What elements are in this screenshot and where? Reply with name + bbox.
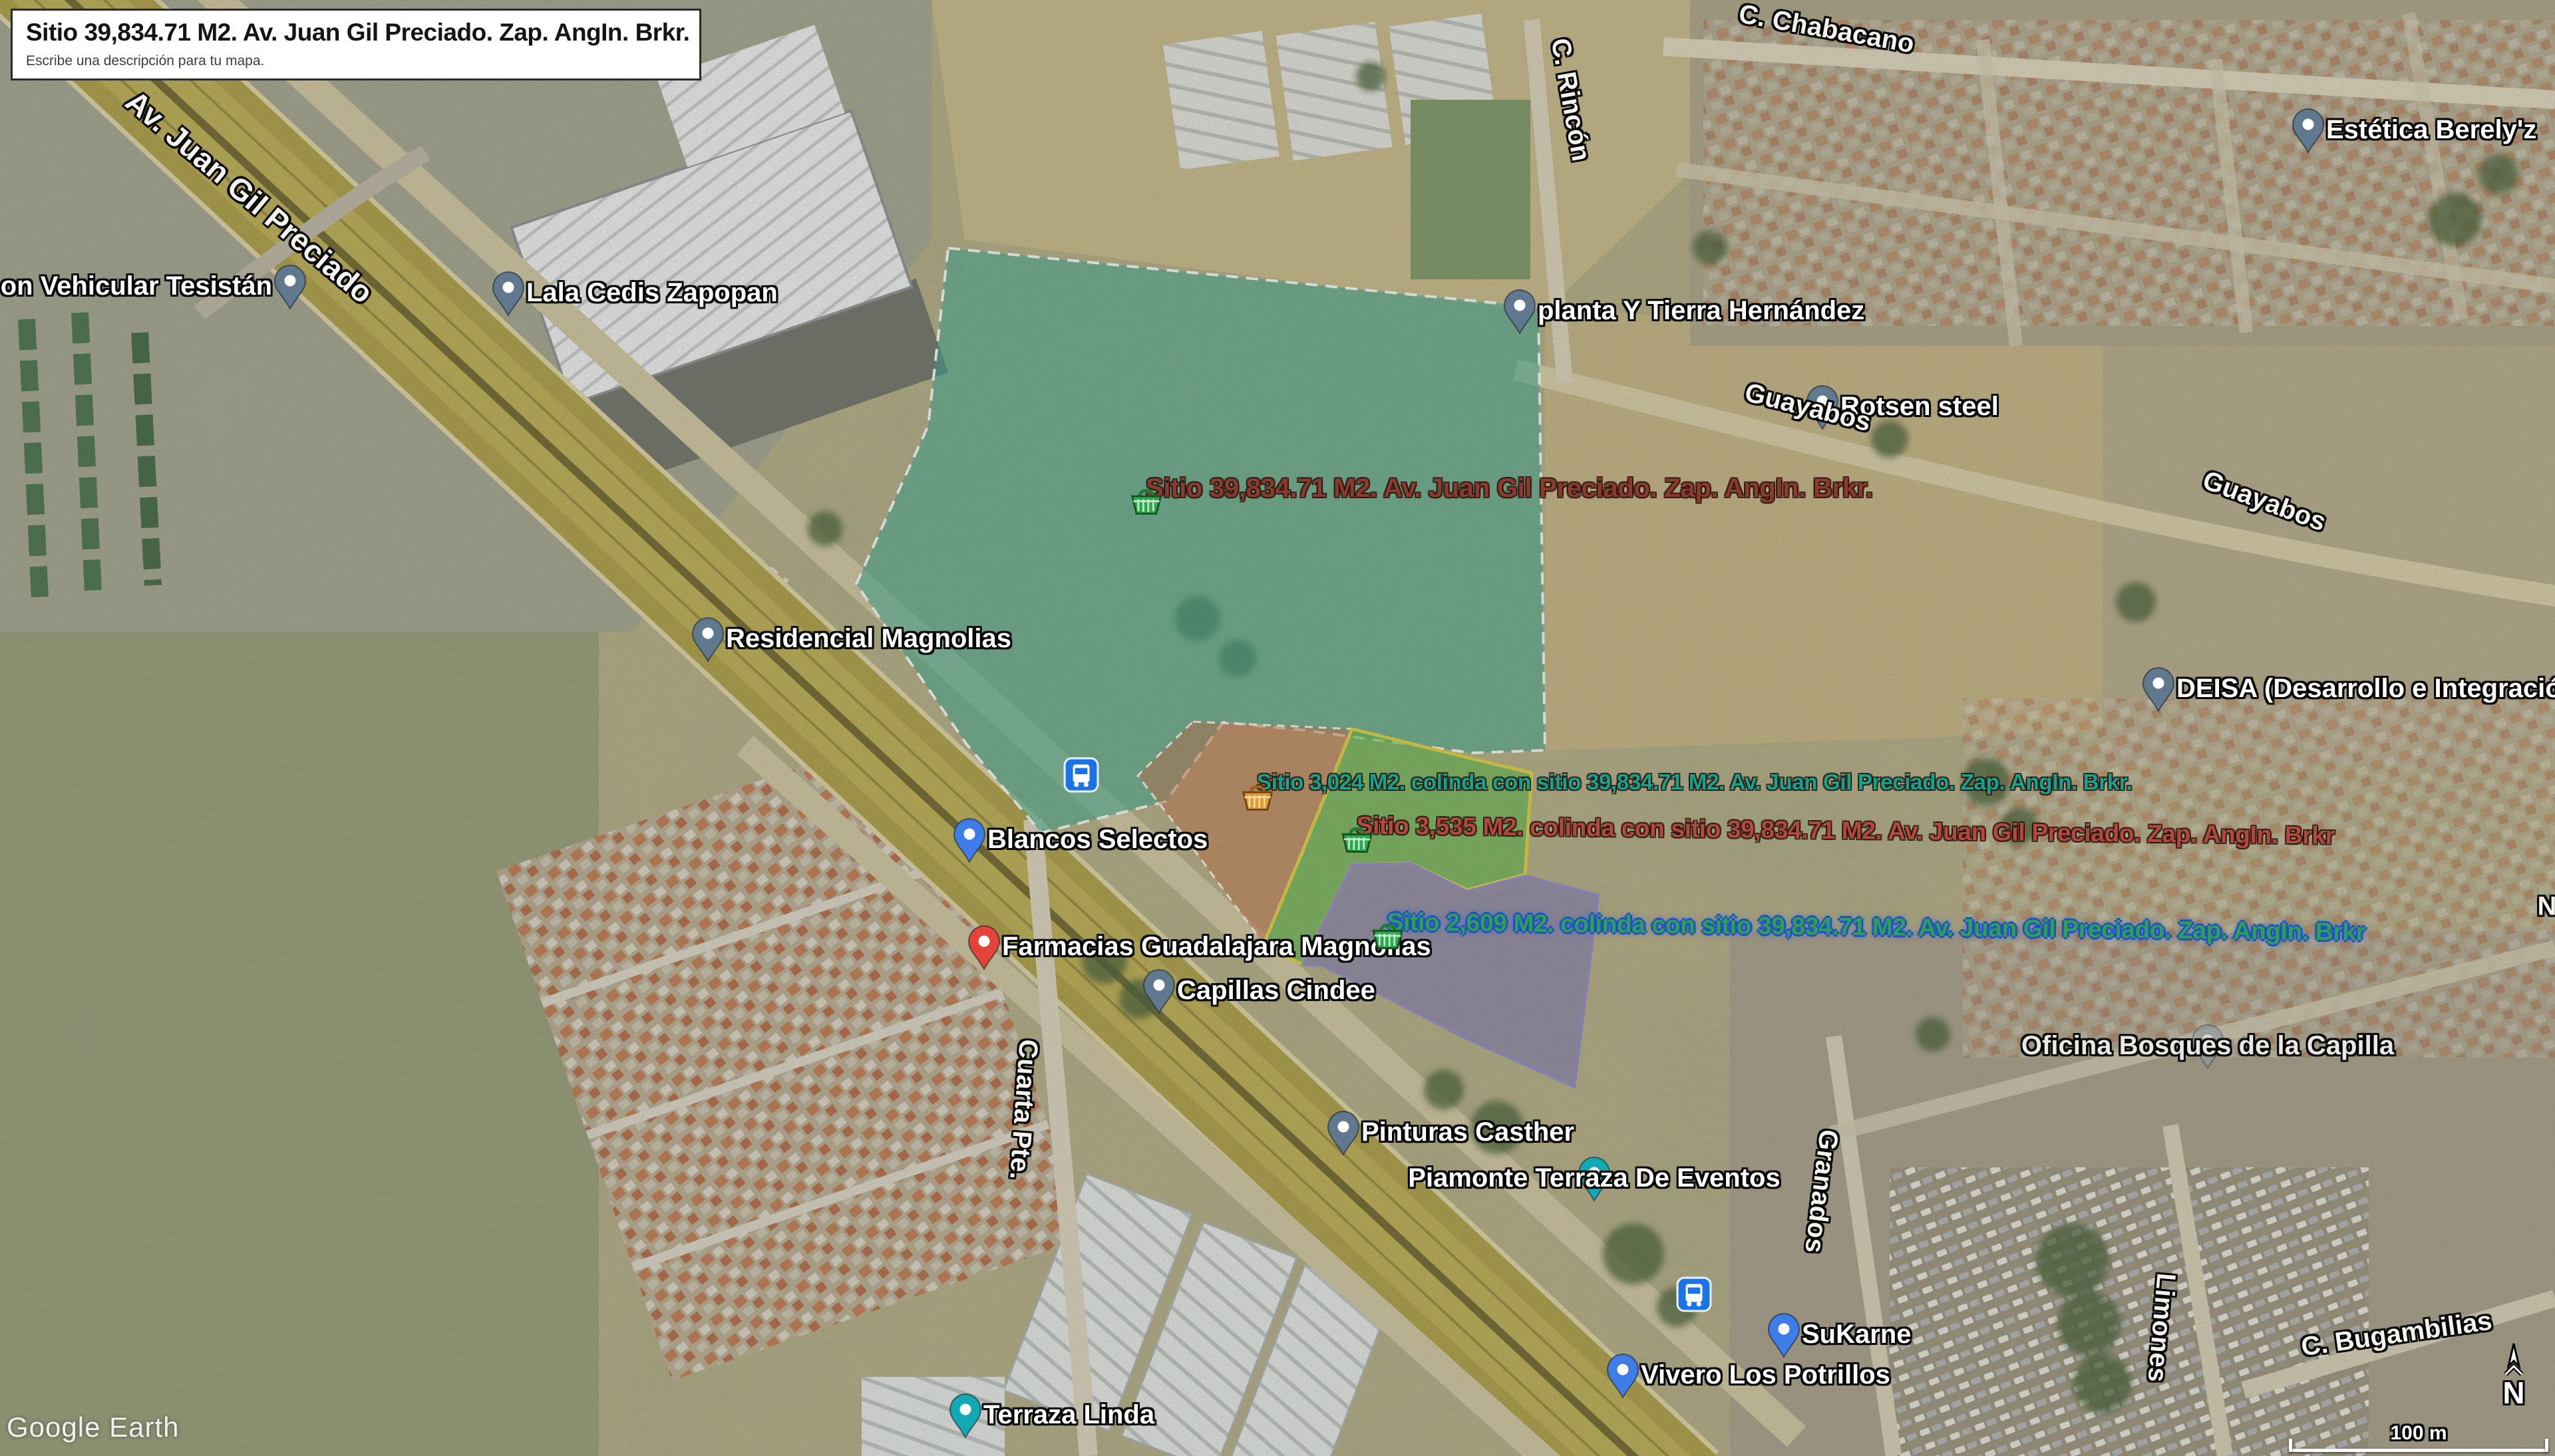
google-earth-watermark: Google Earth	[7, 1411, 180, 1443]
street-label: N	[2538, 892, 2555, 922]
place-label: DEISA (Desarrollo e Integración	[2176, 674, 2555, 704]
parcel-label-sitio-39834[interactable]: Sitio 39,834.71 M2. Av. Juan Gil Preciad…	[1128, 474, 1873, 504]
place-label: planta Y Tierra Hernández	[1538, 296, 1864, 326]
parcel-label-text: Sitio 2,609 M2. colinda con sitio 39,834…	[1387, 908, 2365, 946]
basket-orange-icon[interactable]	[1239, 783, 1276, 813]
place-label: Vivero Los Potrillos	[1641, 1360, 1890, 1390]
street-label: Limones	[2141, 1272, 2180, 1383]
place-label: Lala Cedis Zapopan	[526, 278, 778, 308]
red-pin-icon[interactable]	[968, 925, 1000, 970]
north-arrow-icon	[2496, 1342, 2531, 1376]
place-label: Capillas Cindee	[1177, 976, 1375, 1006]
place-label: Farmacias Guadalajara Magnolias	[1002, 932, 1431, 962]
place-label: Terraza Linda	[983, 1400, 1154, 1430]
slate-pin-icon[interactable]	[2142, 667, 2174, 712]
shop-pin-icon[interactable]	[1607, 1354, 1639, 1399]
parcel-label-sitio-3024[interactable]: Sitio 3,024 M2. colinda con sitio 39,834…	[1239, 770, 2132, 795]
street-label: Granados	[1798, 1128, 1843, 1255]
shop-pin-icon[interactable]	[953, 818, 985, 863]
basket-green-icon[interactable]	[1128, 487, 1165, 517]
scale-bar-label: 100 m	[2289, 1422, 2548, 1445]
basket-green-icon[interactable]	[1369, 921, 1406, 952]
place-label: Residencial Magnolias	[726, 624, 1011, 654]
place-label: Blancos Selectos	[987, 825, 1208, 855]
scale-bar-line	[2289, 1449, 2548, 1452]
scale-bar: 100 m	[2289, 1422, 2548, 1452]
street-label: Guayabos	[2198, 466, 2329, 537]
slate-pin-icon[interactable]	[274, 265, 306, 310]
map-overlay-layer: on Vehicular Tesistán Lala Cedis Zapopan…	[0, 0, 2555, 1456]
map-title-card[interactable]: Sitio 39,834.71 M2. Av. Juan Gil Preciad…	[11, 9, 701, 80]
slate-pin-icon[interactable]	[1143, 969, 1175, 1014]
map-title[interactable]: Sitio 39,834.71 M2. Av. Juan Gil Preciad…	[26, 19, 686, 47]
basket-green-icon[interactable]	[1338, 825, 1375, 855]
place-label: Piamonte Terraza De Eventos	[1408, 1163, 1780, 1193]
slate-pin-icon[interactable]	[1327, 1111, 1359, 1156]
slate-pin-icon[interactable]	[1504, 289, 1536, 335]
map-description-placeholder[interactable]: Escribe una descripción para tu mapa.	[26, 53, 686, 69]
google-earth-map-canvas[interactable]: on Vehicular Tesistán Lala Cedis Zapopan…	[0, 0, 2555, 1456]
place-label: SuKarne	[1802, 1320, 1912, 1350]
slate-pin-icon[interactable]	[492, 271, 524, 317]
bus-stop-icon[interactable]	[1676, 1276, 1712, 1312]
north-compass: N	[2494, 1342, 2534, 1411]
street-label: Cuarta Pte.	[1003, 1038, 1043, 1181]
shop-pin-icon[interactable]	[1768, 1313, 1800, 1358]
place-label: Estética Berely'z	[2326, 115, 2536, 145]
parcel-label-sitio-2609[interactable]: Sitio 2,609 M2. colinda con sitio 39,834…	[1369, 908, 2365, 946]
parcel-label-sitio-3535[interactable]: Sitio 3,535 M2. colinda con sitio 39,834…	[1339, 811, 2335, 850]
street-label: C. Chabacano	[1737, 0, 1916, 59]
compass-n-label: N	[2494, 1375, 2534, 1411]
bus-stop-icon[interactable]	[1063, 757, 1099, 793]
parcel-label-text: Sitio 39,834.71 M2. Av. Juan Gil Preciad…	[1146, 474, 1873, 504]
place-label: Oficina Bosques de la Capilla	[2021, 1031, 2394, 1061]
parcel-label-text: Sitio 3,024 M2. colinda con sitio 39,834…	[1257, 770, 2132, 795]
slate-pin-icon[interactable]	[2292, 108, 2324, 154]
teal-pin-icon[interactable]	[949, 1393, 981, 1439]
street-label: C. Bugambilias	[2299, 1306, 2494, 1363]
place-label: on Vehicular Tesistán	[1, 271, 272, 301]
parcel-label-text: Sitio 3,535 M2. colinda con sitio 39,834…	[1357, 811, 2335, 849]
place-label: Pinturas Casther	[1361, 1117, 1574, 1147]
street-label: C. Rincón	[1545, 36, 1596, 164]
slate-pin-icon[interactable]	[692, 617, 724, 662]
